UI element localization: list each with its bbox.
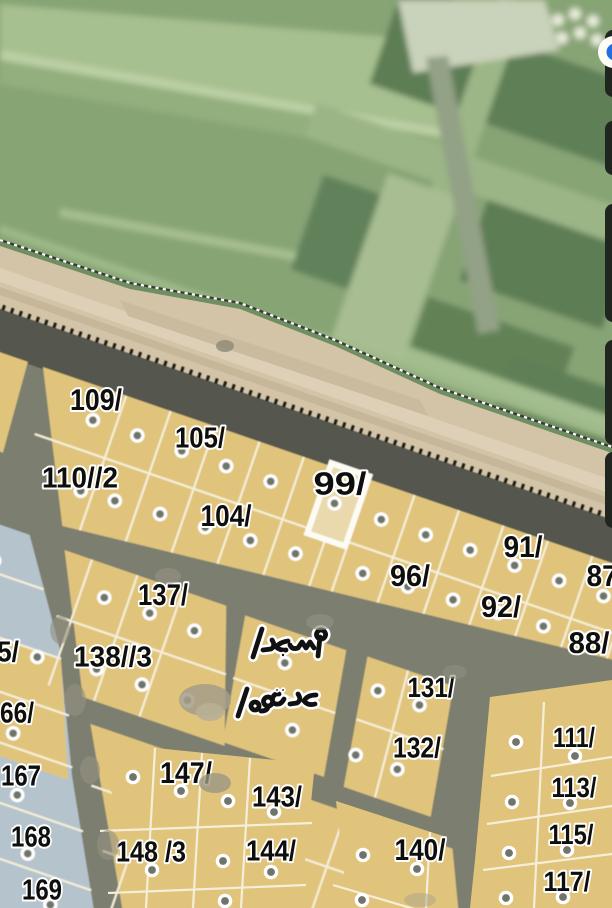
svg-text:167: 167 — [1, 760, 41, 792]
svg-text:96/: 96/ — [390, 560, 431, 593]
svg-text:99/: 99/ — [314, 466, 367, 502]
svg-text:5/: 5/ — [0, 636, 19, 668]
svg-text:138//3: 138//3 — [74, 641, 152, 673]
svg-text:140/: 140/ — [395, 834, 447, 867]
svg-text:66/: 66/ — [0, 697, 34, 729]
svg-text:148 /3: 148 /3 — [116, 836, 186, 868]
svg-text:115/: 115/ — [549, 819, 594, 850]
svg-text:109/: 109/ — [70, 384, 123, 417]
svg-text:137/: 137/ — [138, 579, 189, 612]
svg-text:168: 168 — [11, 821, 51, 853]
svg-text:91/: 91/ — [504, 531, 544, 564]
svg-text:110//2: 110//2 — [42, 462, 118, 494]
svg-text:169: 169 — [22, 874, 62, 906]
svg-text:88/: 88/ — [569, 627, 611, 660]
svg-text:143/: 143/ — [252, 781, 302, 813]
svg-text:132/: 132/ — [393, 732, 441, 764]
svg-text:111/: 111/ — [553, 722, 595, 753]
svg-text:105/: 105/ — [175, 422, 225, 454]
svg-text:144/: 144/ — [246, 835, 296, 867]
svg-text:92/: 92/ — [481, 591, 522, 624]
svg-text:113/: 113/ — [552, 772, 597, 803]
svg-text:104/: 104/ — [201, 500, 253, 533]
svg-text:87/: 87/ — [587, 560, 612, 593]
svg-text:117/: 117/ — [544, 866, 591, 897]
